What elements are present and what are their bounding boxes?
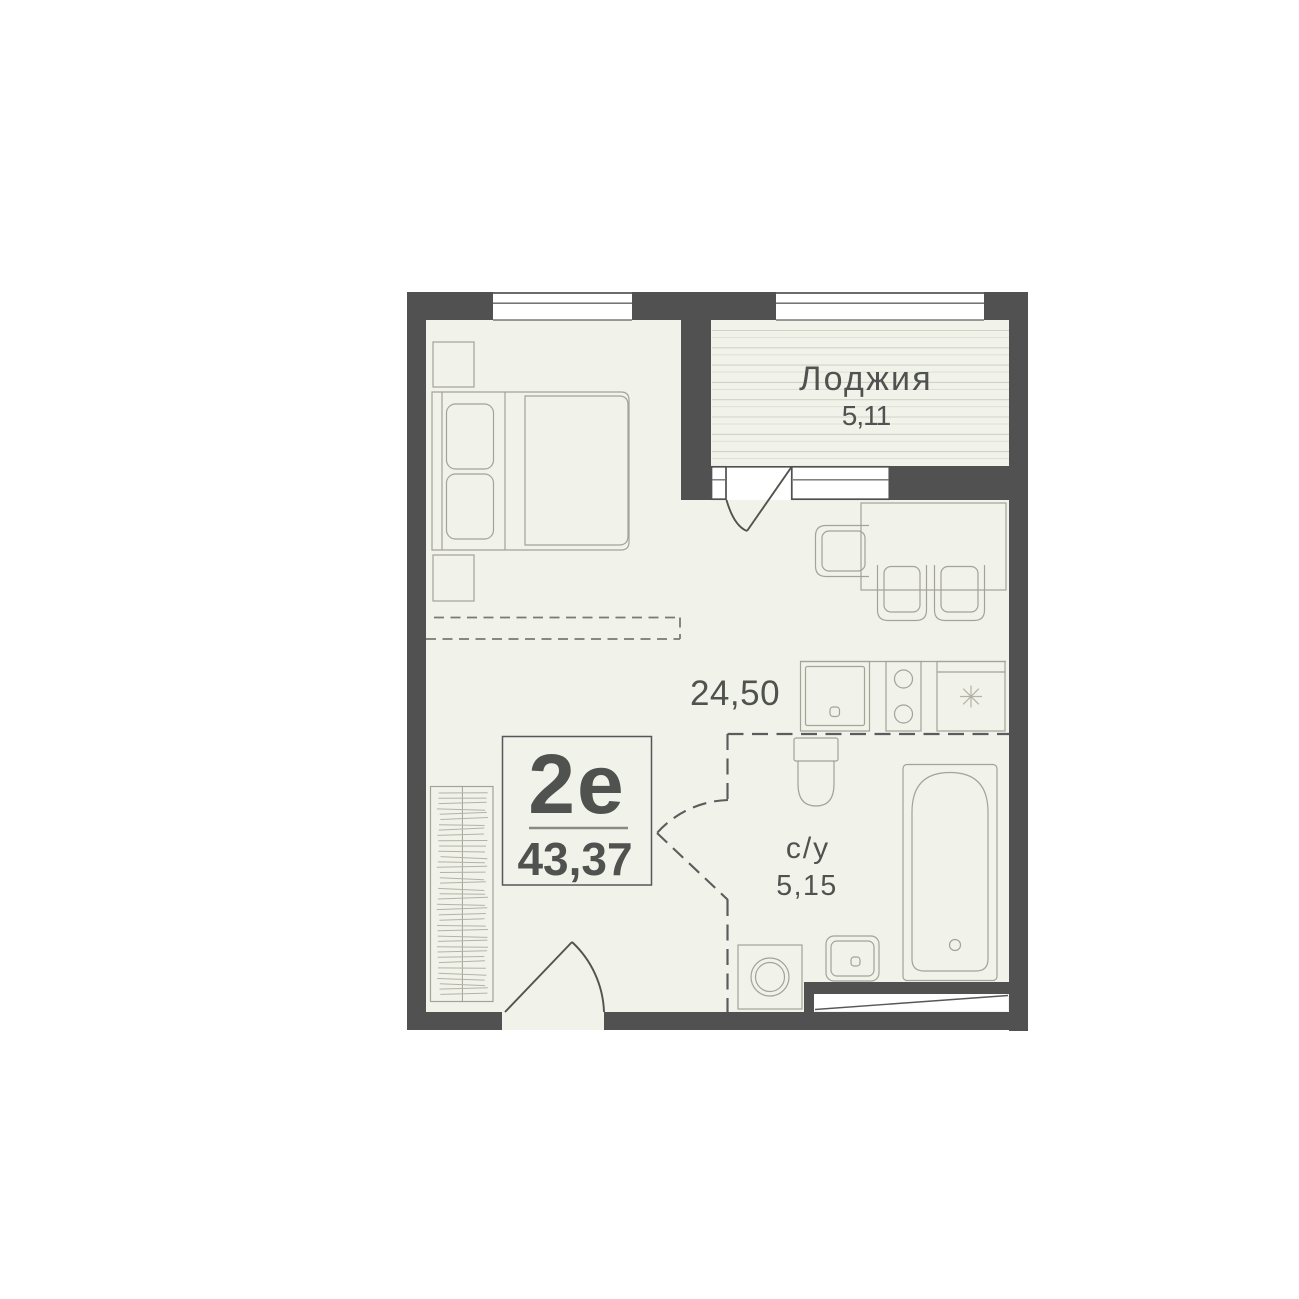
svg-text:24,50: 24,50 [690,674,780,713]
svg-text:5,11: 5,11 [842,400,891,431]
svg-text:с/у: с/у [786,832,830,865]
svg-text:43,37: 43,37 [517,833,632,885]
svg-text:2е: 2е [528,737,625,831]
svg-text:5,15: 5,15 [776,870,837,902]
svg-text:Лоджия: Лоджия [799,360,933,398]
